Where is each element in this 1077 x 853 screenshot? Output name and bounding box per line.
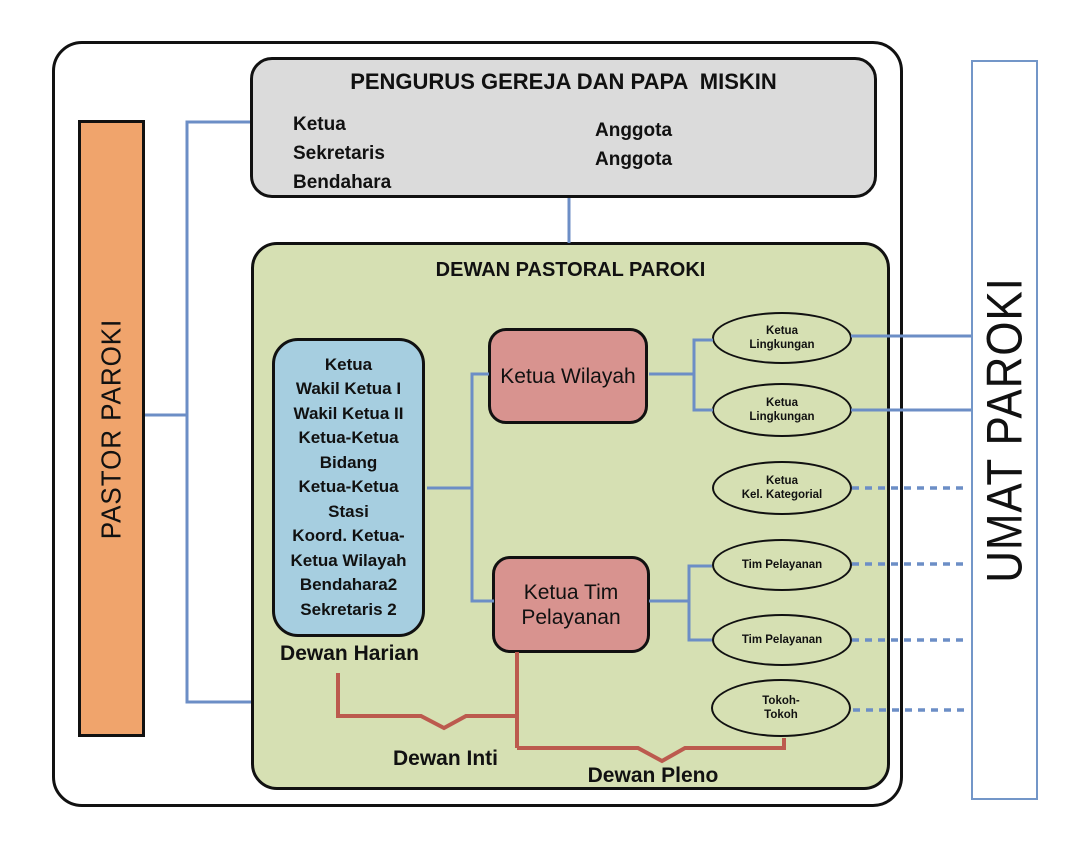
ketua-wilayah-label: Ketua Wilayah	[500, 364, 635, 389]
role-sekretaris: Sekretaris	[293, 139, 391, 168]
diagram-canvas: PASTOR PAROKI UMAT PAROKI PENGURUS GEREJ…	[0, 0, 1077, 853]
pengurus-gereja-box: PENGURUS GEREJA DAN PAPA MISKIN Ketua Se…	[250, 57, 877, 198]
ellipse-tim-pelayanan-1: Tim Pelayanan	[712, 539, 852, 591]
ketua-tim-line1: Ketua Tim	[524, 580, 619, 605]
ellipse-text: Tokoh-	[762, 694, 799, 708]
pengurus-gereja-title: PENGURUS GEREJA DAN PAPA MISKIN	[253, 69, 874, 95]
harian-line: Ketua-Ketua	[275, 475, 422, 500]
dewan-inti-caption: Dewan Inti	[383, 747, 508, 771]
ellipse-ketua-kel-kategorial: Ketua Kel. Kategorial	[712, 461, 852, 515]
harian-line: Stasi	[275, 500, 422, 525]
ellipse-text: Ketua	[766, 474, 798, 488]
ellipse-text: Ketua	[766, 396, 798, 410]
pengurus-right-roles: Anggota Anggota	[595, 116, 672, 174]
role-anggota-2: Anggota	[595, 145, 672, 174]
dewan-pastoral-title: DEWAN PASTORAL PAROKI	[254, 259, 887, 282]
harian-line: Ketua	[275, 353, 422, 378]
ellipse-text: Tim Pelayanan	[742, 633, 822, 647]
harian-line: Wakil Ketua II	[275, 402, 422, 427]
dewan-harian-caption: Dewan Harian	[262, 642, 437, 666]
ellipse-text: Kel. Kategorial	[742, 488, 823, 502]
ellipse-ketua-lingkungan-2: Ketua Lingkungan	[712, 383, 852, 437]
harian-line: Sekretaris 2	[275, 598, 422, 623]
pastor-paroki-bar: PASTOR PAROKI	[78, 120, 145, 737]
pastor-paroki-label: PASTOR PAROKI	[96, 318, 128, 538]
ellipse-text: Tim Pelayanan	[742, 558, 822, 572]
ketua-wilayah-box: Ketua Wilayah	[488, 328, 648, 424]
ellipse-text: Lingkungan	[749, 338, 814, 352]
pengurus-left-roles: Ketua Sekretaris Bendahara	[293, 110, 391, 197]
harian-line: Bidang	[275, 451, 422, 476]
ellipse-text: Lingkungan	[749, 410, 814, 424]
ellipse-text: Ketua	[766, 324, 798, 338]
role-ketua: Ketua	[293, 110, 391, 139]
harian-line: Koord. Ketua-	[275, 524, 422, 549]
ellipse-ketua-lingkungan-1: Ketua Lingkungan	[712, 312, 852, 364]
dewan-pleno-caption: Dewan Pleno	[578, 764, 728, 788]
dewan-harian-box: Ketua Wakil Ketua I Wakil Ketua II Ketua…	[272, 338, 425, 637]
role-anggota-1: Anggota	[595, 116, 672, 145]
ketua-tim-line2: Pelayanan	[521, 605, 620, 630]
ellipse-tokoh-tokoh: Tokoh- Tokoh	[711, 679, 851, 737]
harian-line: Wakil Ketua I	[275, 377, 422, 402]
harian-line: Ketua-Ketua	[275, 426, 422, 451]
umat-paroki-bar: UMAT PAROKI	[971, 60, 1038, 800]
role-bendahara: Bendahara	[293, 168, 391, 197]
ellipse-text: Tokoh	[764, 708, 798, 722]
umat-paroki-label: UMAT PAROKI	[976, 277, 1034, 583]
harian-line: Ketua Wilayah	[275, 549, 422, 574]
ellipse-tim-pelayanan-2: Tim Pelayanan	[712, 614, 852, 666]
ketua-tim-pelayanan-box: Ketua Tim Pelayanan	[492, 556, 650, 653]
harian-line: Bendahara2	[275, 573, 422, 598]
